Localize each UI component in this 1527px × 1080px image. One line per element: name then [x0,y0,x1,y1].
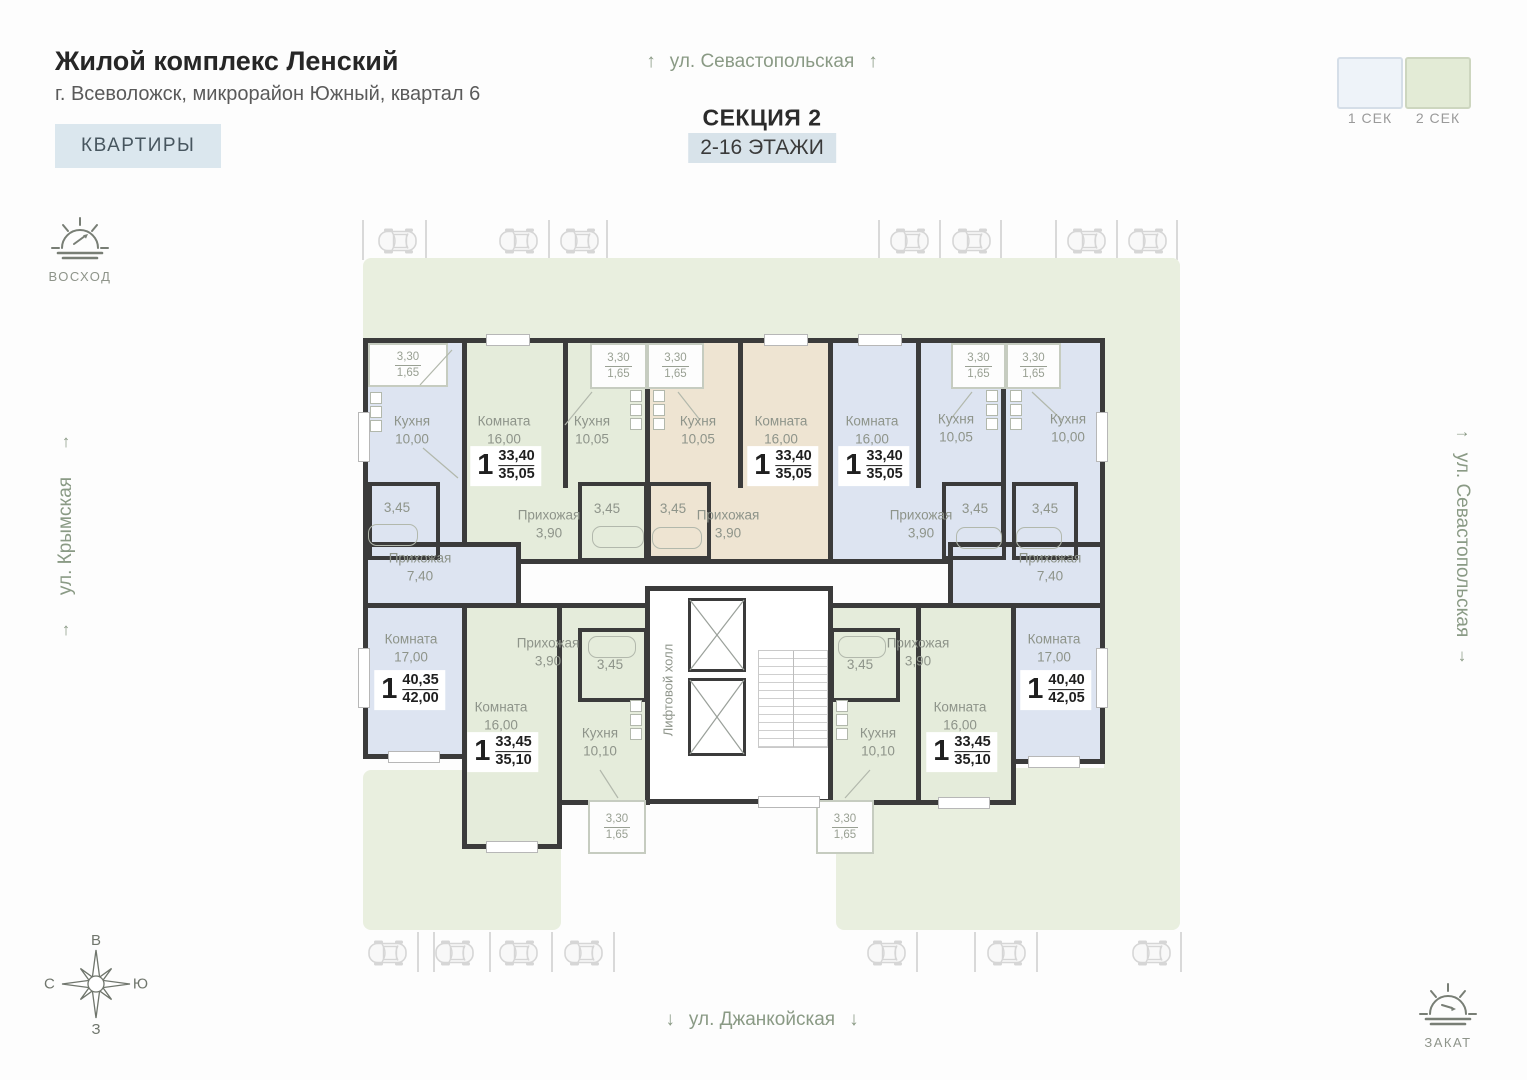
apartment-tag: 1 40,4042,05 [1020,670,1091,710]
lawn-top [363,258,1180,344]
arrow-up-icon: ↑ [62,432,71,452]
room-label: Комната16,00 [934,698,987,733]
compass-rose: В Ю З С [48,934,144,1034]
hall-label: Прихожая3,90 [890,506,953,541]
bathroom-label: 3,45 [660,500,686,518]
compass-south: Ю [133,976,148,993]
arrow-down-icon: ↓ [665,1009,675,1031]
sunset-icon [1416,978,1480,1028]
apartment-tag: 1 33,4535,10 [467,732,538,772]
car-icon [429,940,477,966]
kitchen-label: Кухня10,00 [1050,410,1086,445]
apartment-tag: 1 33,4035,05 [470,446,541,486]
car-icon [493,940,541,966]
hall-label: Прихожая7,40 [389,549,452,584]
kitchen-label: Кухня10,05 [938,410,974,445]
bathroom-label: 3,45 [597,656,623,674]
car-icon [884,228,932,254]
bathroom-label: 3,45 [384,499,410,517]
hall-label: Прихожая3,90 [517,634,580,669]
legend-section-1[interactable] [1337,57,1403,109]
street-top: ↑ ул. Севастопольская ↑ [646,51,878,73]
car-icon [362,940,410,966]
kitchen-label: Кухня10,10 [860,724,896,759]
car-icon [861,940,909,966]
apartment-tag: 1 33,4035,05 [747,446,818,486]
hall-label: Прихожая3,90 [697,506,760,541]
car-icon [1126,940,1174,966]
arrow-down-icon: ↓ [1458,646,1467,666]
sunrise-block: ВОСХОД [42,212,118,284]
car-icon [946,228,994,254]
room-label: Комната17,00 [1028,630,1081,665]
compass-north: С [44,976,55,993]
kitchen-label: Кухня10,05 [680,412,716,447]
arrow-down-icon: ↓ [849,1009,859,1031]
street-bottom: ↓ ул. Джанкойская ↓ [665,1009,858,1031]
bathroom-label: 3,45 [594,500,620,518]
room-label: Комната16,00 [475,698,528,733]
car-icon [1061,228,1109,254]
sunset-block: ЗАКАТ [1410,978,1486,1050]
room-label: Комната17,00 [385,630,438,665]
hall-label: Прихожая3,90 [518,506,581,541]
car-icon [981,940,1029,966]
apartment-tag: 1 40,3542,00 [374,670,445,710]
section-title: СЕКЦИЯ 2 [702,105,821,132]
hall-label: Прихожая7,40 [1019,549,1082,584]
sunset-label: ЗАКАТ [1410,1035,1486,1050]
car-icon [1122,228,1170,254]
legend-section-2[interactable] [1405,57,1471,109]
sunrise-label: ВОСХОД [42,269,118,284]
car-icon [554,228,602,254]
hall-label: Прихожая3,90 [887,634,950,669]
apartments-button[interactable]: КВАРТИРЫ [55,124,221,168]
bathroom-label: 3,45 [1032,500,1058,518]
arrow-up-icon: ↑ [868,51,878,73]
kitchen-label: Кухня10,05 [574,412,610,447]
kitchen-label: Кухня10,00 [394,412,430,447]
arrow-up-icon: ↑ [62,620,71,640]
floor-plan-page: Жилой комплекс Ленский г. Всеволожск, ми… [0,0,1527,1080]
page-subtitle: г. Всеволожск, микрорайон Южный, квартал… [55,83,480,106]
apartment-tag: 1 33,4035,05 [838,446,909,486]
legend-section-2-label: 2 СЕК [1405,110,1471,126]
floors-badge: 2-16 ЭТАЖИ [688,133,836,163]
car-icon [558,940,606,966]
bathroom-label: 3,45 [962,500,988,518]
legend-section-1-label: 1 СЕК [1337,110,1403,126]
room-label: Комната16,00 [846,412,899,447]
street-left: ул. Крымская [55,477,77,595]
room-label: Комната16,00 [478,412,531,447]
page-title: Жилой комплекс Ленский [55,46,480,77]
compass-icon [60,948,132,1020]
kitchen-label: Кухня10,10 [582,724,618,759]
car-icon [493,228,541,254]
compass-west: З [91,1021,100,1038]
compass-east: В [91,932,101,949]
bathroom-label: 3,45 [847,656,873,674]
room-label: Комната16,00 [755,412,808,447]
sunrise-icon [48,212,112,262]
car-icon [372,228,420,254]
apartment-tag: 1 33,4535,10 [926,732,997,772]
arrow-right-icon: → [1454,422,1471,442]
arrow-up-icon: ↑ [646,51,656,73]
street-right: ул. Севастопольская [1451,453,1473,638]
